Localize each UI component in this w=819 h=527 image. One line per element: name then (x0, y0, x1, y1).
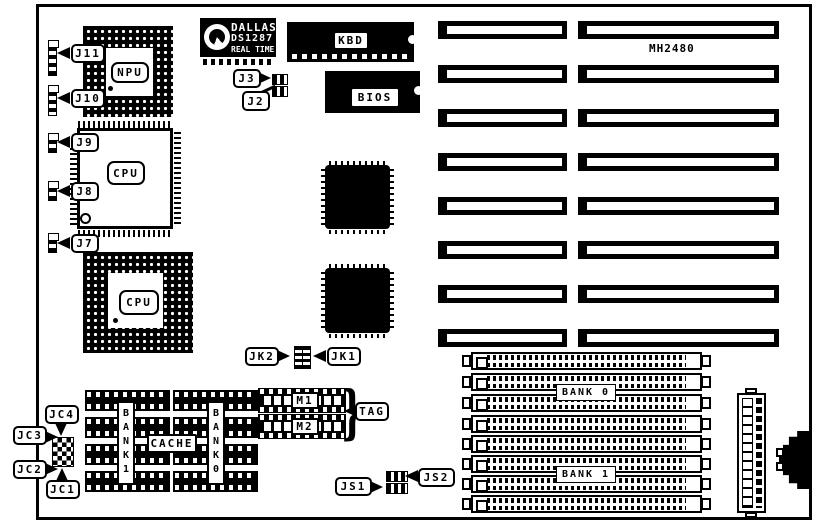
model-number: MH2480 (649, 42, 695, 55)
simm-tab (462, 397, 471, 409)
chipset-chip-b (325, 268, 390, 333)
isa-slot-16bit (578, 197, 779, 215)
bank0-column-label: BANK0 (207, 401, 225, 485)
jumper-j7-label: J7 (71, 234, 99, 253)
simm-body (471, 352, 702, 370)
isa-slot-8bit (438, 329, 567, 347)
j10-pin-header (48, 91, 57, 116)
j11-pointer (57, 47, 70, 59)
simm-tab (462, 438, 471, 450)
dallas-pins (203, 59, 273, 65)
simm-socket (462, 415, 712, 433)
bank1-label: BANK 1 (556, 466, 616, 483)
jumper-jk1-label: JK1 (327, 347, 361, 366)
chip-notch-icon (408, 35, 417, 44)
chipset-b-pins (329, 334, 386, 338)
simm-tab (462, 498, 471, 510)
j8-pointer (57, 185, 70, 197)
m2-label: M2 (291, 418, 319, 435)
jumper-j3-label: J3 (233, 69, 261, 88)
j3-pin-header (272, 74, 288, 85)
simm-tab (701, 355, 711, 367)
isa-slot-8bit (438, 285, 567, 303)
simm-tab (701, 438, 711, 450)
jumper-j11-label: J11 (71, 44, 105, 63)
j9-pointer (57, 136, 70, 148)
simm-tab (701, 418, 711, 430)
j2-pin-header (272, 86, 288, 97)
isa-slot-8bit (438, 65, 567, 83)
j7-pointer (57, 237, 70, 249)
j10-pointer (57, 92, 70, 104)
jumper-jc2-label: JC2 (13, 460, 47, 479)
jumper-j10-label: J10 (71, 89, 105, 108)
j8-pin-header (48, 187, 57, 201)
dallas-line1: DALLAS (231, 22, 277, 33)
cpu-qfp-pins-top (78, 121, 173, 128)
jumper-j9-label: J9 (71, 133, 99, 152)
jumper-js2-label: JS2 (418, 468, 455, 487)
jumper-jc1-label: JC1 (46, 480, 80, 499)
isa-slot-16bit (578, 65, 779, 83)
chipset-b-pins (390, 272, 394, 329)
keyboard-connector-notch (776, 448, 784, 457)
pin1-marker-icon (80, 213, 91, 224)
keyboard-connector-notch (776, 462, 784, 471)
simm-tab (701, 376, 711, 388)
dallas-text: DALLAS DS1287 REAL TIME (231, 22, 277, 55)
simm-body (471, 415, 702, 433)
simm-tab (701, 397, 711, 409)
bank1-column-label: BANK1 (117, 401, 135, 485)
dallas-line2: DS1287 (231, 33, 277, 44)
bios-label: BIOS (351, 88, 399, 107)
simm-socket (462, 352, 712, 370)
j7-pin-header (48, 239, 57, 253)
jk-pin-header (294, 346, 311, 369)
jumper-js1-label: JS1 (335, 477, 372, 496)
simm-tab (701, 498, 711, 510)
cpu-pga-label: CPU (119, 290, 159, 315)
chip-notch-icon (414, 86, 423, 95)
dallas-line3: REAL TIME (231, 44, 277, 55)
simm-tab (462, 458, 471, 470)
isa-slot-8bit (438, 197, 567, 215)
npu-label: NPU (111, 62, 149, 83)
js2-pointer (405, 470, 418, 482)
simm-socket (462, 435, 712, 453)
simm-socket (462, 495, 712, 513)
chipset-a-pins (390, 169, 394, 225)
m1-label: M1 (291, 392, 319, 409)
power-connector-tab (745, 512, 757, 518)
js1-pin-header (386, 483, 408, 494)
dallas-rtc-chip: DALLAS DS1287 REAL TIME (200, 18, 276, 57)
power-pins (756, 398, 762, 508)
simm-body (471, 495, 702, 513)
cache-label: CACHE (147, 434, 197, 453)
j9-pin-header (48, 139, 57, 153)
cpu-qfp-pins-right (174, 132, 181, 227)
simm-tab (701, 478, 711, 490)
pin1-marker-icon (108, 86, 113, 91)
jumper-jc4-label: JC4 (45, 405, 79, 424)
isa-slot-16bit (578, 285, 779, 303)
jumper-j8-label: J8 (71, 182, 99, 201)
kbd-label: KBD (334, 32, 368, 49)
isa-slot-8bit (438, 241, 567, 259)
simm-tab (462, 478, 471, 490)
chipset-a-pins (329, 230, 386, 234)
clock-icon (204, 24, 230, 50)
jumper-jk2-label: JK2 (245, 347, 279, 366)
isa-slot-16bit (578, 153, 779, 171)
cpu-qfp-label: CPU (107, 161, 145, 185)
simm-tab (701, 458, 711, 470)
isa-slot-8bit (438, 21, 567, 39)
simm-tab (462, 376, 471, 388)
jumper-jc3-label: JC3 (13, 426, 47, 445)
isa-slot-16bit (578, 21, 779, 39)
isa-slot-16bit (578, 329, 779, 347)
simm-tab (462, 355, 471, 367)
power-pins (742, 398, 753, 508)
bank0-label: BANK 0 (556, 384, 616, 401)
simm-body (471, 435, 702, 453)
jumper-j2-label: J2 (242, 91, 270, 111)
tag-label: TAG (355, 402, 389, 421)
jk1-pointer (313, 350, 326, 362)
isa-slot-8bit (438, 153, 567, 171)
simm-tab (462, 418, 471, 430)
isa-slot-16bit (578, 241, 779, 259)
isa-slot-16bit (578, 109, 779, 127)
pin1-marker-icon (113, 318, 118, 323)
isa-slot-8bit (438, 109, 567, 127)
j11-pin-header (48, 46, 57, 76)
motherboard-diagram: NPU J11 J10 DALLAS DS1287 REAL TIME KBD … (0, 0, 819, 527)
chipset-chip-a (325, 165, 390, 229)
power-connector (737, 393, 766, 513)
